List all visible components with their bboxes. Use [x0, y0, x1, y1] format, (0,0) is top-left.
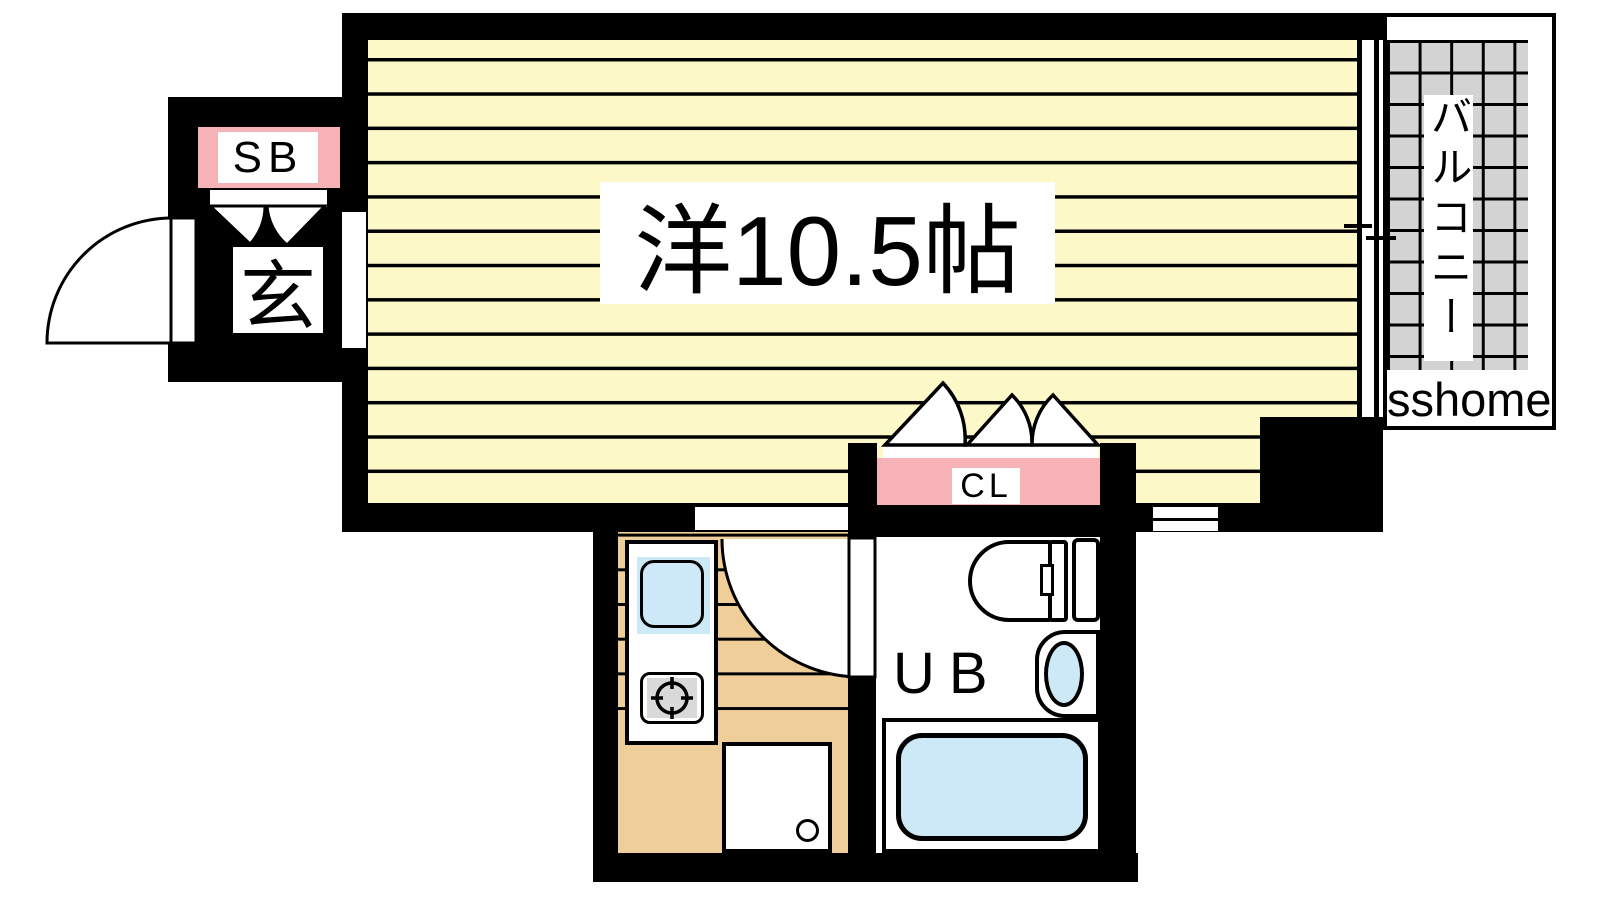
floor-plan: 洋10.5帖 玄 SB CL UB バルコニー sshome — [0, 0, 1600, 900]
entrance-label: 玄 — [233, 247, 323, 333]
kitchen-bath-divider-wall — [848, 537, 876, 882]
washer-drain-icon — [796, 819, 819, 842]
doorway-opening — [695, 507, 848, 530]
pillar — [1260, 417, 1383, 532]
balcony-label: バルコニー — [1424, 95, 1473, 345]
bathtub-icon — [896, 733, 1088, 841]
wall-lower-left — [593, 532, 618, 882]
shoe-box-label: SB — [218, 132, 318, 183]
watermark-text: sshome — [1387, 372, 1553, 427]
shoe-box-shelf — [210, 190, 327, 207]
toilet-hinge-notch — [1040, 564, 1054, 596]
balcony-window-line — [1374, 40, 1379, 430]
balcony-window-line — [1357, 40, 1362, 430]
entrance-step-opening — [342, 212, 366, 348]
main-room-label: 洋10.5帖 — [600, 182, 1055, 304]
toilet-tank-icon — [1072, 538, 1100, 622]
closet-shelf — [883, 446, 1098, 458]
balcony-label-strip: バルコニー — [1424, 95, 1473, 361]
window-tick — [1366, 236, 1396, 240]
window-tick — [1344, 224, 1372, 228]
kitchen-sink — [640, 560, 704, 628]
entrance-door-opening — [168, 218, 197, 343]
wash-basin-bowl-icon — [1044, 641, 1084, 707]
small-window — [1153, 507, 1218, 531]
closet-label: CL — [952, 468, 1020, 504]
closet-bath-top-wall — [848, 503, 1136, 537]
entrance-door-swing-icon — [47, 218, 172, 343]
stove-burner-plate — [647, 678, 697, 718]
wall-top — [342, 13, 1383, 40]
unit-bath-label: UB — [893, 640, 1033, 707]
